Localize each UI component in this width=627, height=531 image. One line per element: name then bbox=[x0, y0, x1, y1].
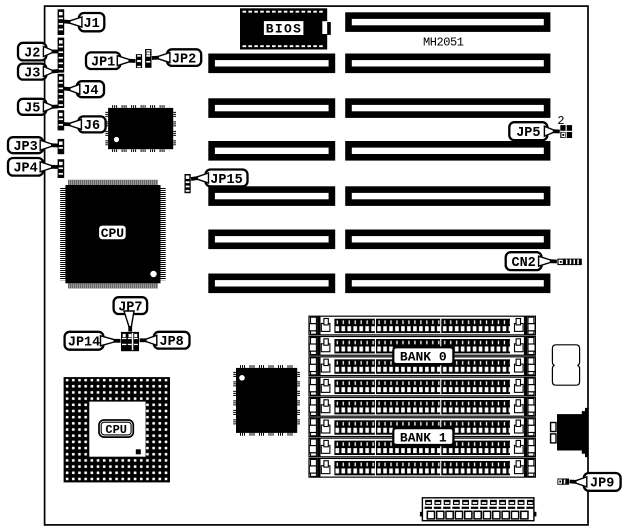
svg-text:JP14: JP14 bbox=[68, 336, 100, 351]
svg-text:J1: J1 bbox=[83, 17, 99, 32]
svg-text:JP7: JP7 bbox=[118, 300, 142, 315]
svg-text:CN2: CN2 bbox=[511, 256, 535, 271]
svg-text:JP9: JP9 bbox=[590, 477, 614, 492]
svg-text:JP3: JP3 bbox=[13, 140, 37, 155]
svg-text:CPU: CPU bbox=[101, 226, 124, 241]
svg-text:JP1: JP1 bbox=[91, 56, 115, 71]
svg-text:JP5: JP5 bbox=[516, 126, 540, 141]
svg-text:MH2051: MH2051 bbox=[423, 36, 464, 50]
svg-text:BIOS: BIOS bbox=[266, 22, 302, 37]
svg-text:BANK 0: BANK 0 bbox=[400, 349, 447, 364]
svg-text:BANK 1: BANK 1 bbox=[400, 430, 447, 445]
svg-text:JP8: JP8 bbox=[159, 335, 183, 350]
svg-text:J2: J2 bbox=[24, 46, 40, 61]
svg-text:J5: J5 bbox=[24, 102, 40, 117]
svg-text:JP15: JP15 bbox=[210, 173, 242, 188]
svg-text:J3: J3 bbox=[24, 66, 40, 81]
svg-text:2: 2 bbox=[557, 114, 564, 128]
svg-text:JP4: JP4 bbox=[13, 162, 37, 177]
svg-text:J4: J4 bbox=[82, 84, 98, 99]
svg-text:CPU: CPU bbox=[105, 423, 127, 437]
svg-text:J6: J6 bbox=[84, 119, 100, 134]
svg-text:JP2: JP2 bbox=[172, 52, 196, 67]
